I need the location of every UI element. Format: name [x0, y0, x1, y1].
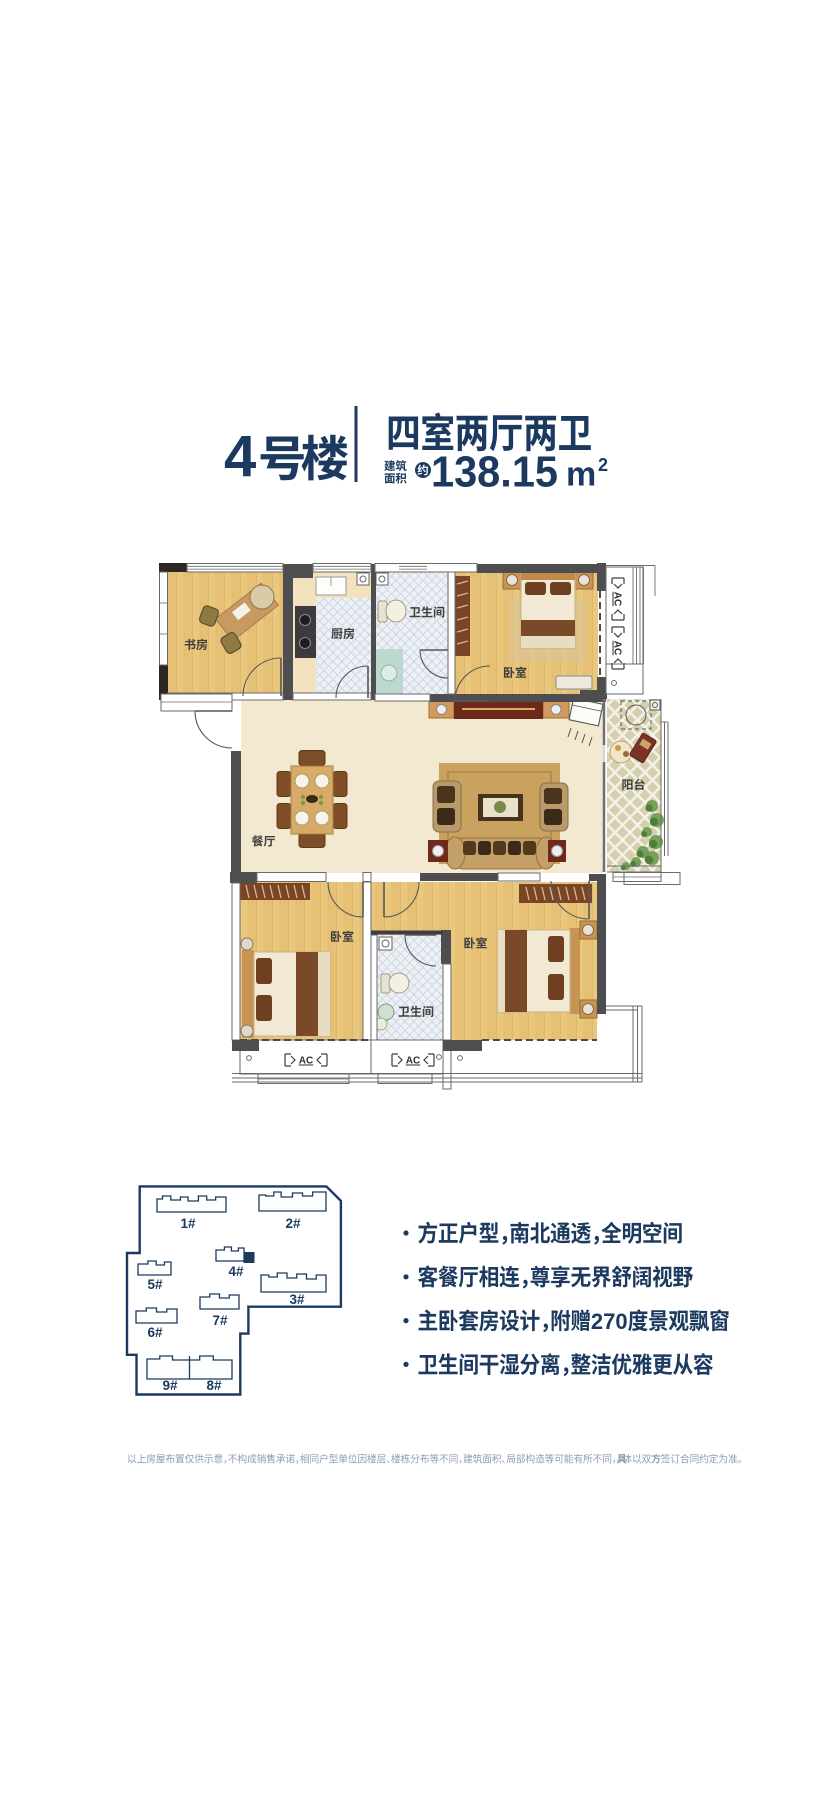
svg-text:5#: 5#: [147, 1277, 163, 1292]
svg-text:1#: 1#: [180, 1216, 196, 1231]
svg-text:138.15: 138.15: [431, 448, 558, 497]
svg-text:7#: 7#: [212, 1313, 228, 1328]
svg-text:3#: 3#: [289, 1292, 305, 1307]
svg-text:8#: 8#: [206, 1378, 222, 1393]
svg-text:AC: AC: [299, 1056, 313, 1067]
svg-text:AC: AC: [612, 592, 623, 606]
svg-text:9#: 9#: [162, 1378, 178, 1393]
svg-text:4: 4: [224, 424, 256, 489]
svg-text:2: 2: [598, 455, 608, 475]
svg-text:AC: AC: [612, 641, 623, 655]
svg-text:具: 具: [616, 1454, 628, 1466]
svg-text:m: m: [566, 456, 596, 494]
svg-text:AC: AC: [406, 1056, 420, 1067]
svg-text:6#: 6#: [147, 1325, 163, 1340]
svg-text:2#: 2#: [285, 1216, 301, 1231]
svg-text:4#: 4#: [228, 1264, 244, 1279]
svg-text:270: 270: [591, 1309, 628, 1334]
